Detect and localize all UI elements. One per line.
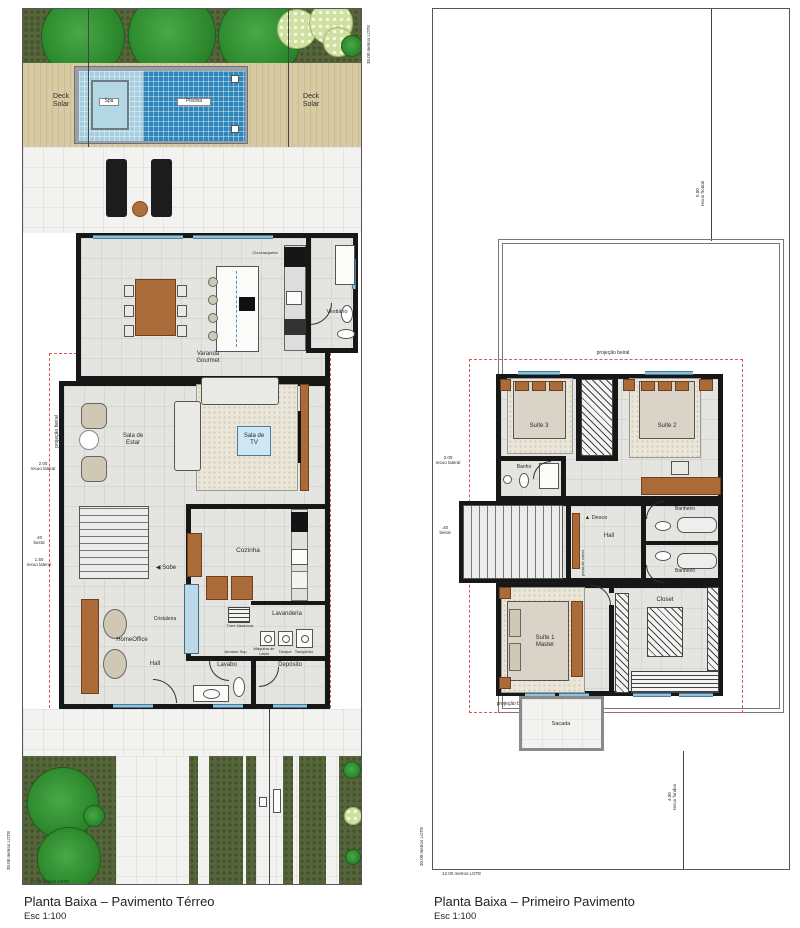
side-table xyxy=(132,201,148,217)
bathtub xyxy=(677,517,717,533)
window xyxy=(93,235,183,239)
desce-label: ▲ Desce xyxy=(579,515,613,521)
gate-marker xyxy=(259,797,267,807)
lavanderia-label: Lavanderia xyxy=(261,611,313,618)
sun-lounger xyxy=(151,159,172,217)
dim-note: .40 beiral xyxy=(27,535,51,545)
island-cabinet xyxy=(231,576,253,600)
grass-strip xyxy=(299,756,326,885)
dim-note: 2.00 recuo lateral xyxy=(29,461,57,471)
first-floor-title: Planta Baixa – Primeiro Pavimento xyxy=(434,894,635,909)
grass-strip xyxy=(189,756,198,885)
lot-width-label: 12.00 metros LOTE xyxy=(442,871,506,876)
bathtub-sink xyxy=(337,329,355,339)
coffee-cabinet xyxy=(187,533,202,577)
bathtub xyxy=(677,553,717,569)
toilet xyxy=(233,677,245,697)
window xyxy=(273,704,307,708)
deck-solar-right-label: Deck Solar xyxy=(285,93,337,109)
pool: Piscina Spa xyxy=(74,66,248,144)
back-patio xyxy=(23,709,362,756)
shower xyxy=(335,245,355,285)
wall xyxy=(613,374,618,461)
cooktop xyxy=(239,297,255,311)
hall-label: Hall xyxy=(593,533,625,540)
sink xyxy=(503,475,512,484)
tree-icon xyxy=(344,807,362,825)
sink xyxy=(291,549,308,565)
grass-strip xyxy=(283,756,293,885)
first-floor-plan: 5.00 recuo frontal projeção beiral proje… xyxy=(432,8,790,870)
main-pool xyxy=(143,71,245,141)
grass-strip xyxy=(246,756,256,885)
staircase xyxy=(463,505,563,579)
sacada-label: Sacada xyxy=(539,721,583,727)
pillow xyxy=(532,381,546,391)
tanque-basin xyxy=(282,635,290,643)
window xyxy=(193,235,273,239)
tanque xyxy=(278,631,293,646)
wall xyxy=(186,504,330,509)
window xyxy=(113,704,153,708)
sun-lounger xyxy=(106,159,127,217)
closet-island-hatch xyxy=(647,607,683,657)
wall xyxy=(566,501,571,583)
pillow xyxy=(658,381,672,391)
lot-depth-label: 30.00 metros LOTE xyxy=(419,814,428,878)
island-cabinet xyxy=(206,576,228,600)
lot-depth-label: 30.00 metros LOTE xyxy=(6,818,15,882)
pillow xyxy=(509,609,521,637)
cristaleira-cabinet xyxy=(184,584,199,654)
wardrobe-hatch xyxy=(631,671,719,693)
window xyxy=(645,371,693,375)
window xyxy=(213,704,243,708)
vestiario-label: Vestiário xyxy=(315,309,359,315)
chair xyxy=(124,285,134,297)
window xyxy=(679,693,713,697)
tv xyxy=(298,411,301,463)
sala-estar-label: Sala de Estar xyxy=(111,433,155,447)
pool-step xyxy=(231,125,239,133)
tanquinho-basin xyxy=(301,635,309,643)
hall-label: Hall xyxy=(139,661,171,668)
sofa xyxy=(201,377,279,405)
wardrobe-hatch xyxy=(615,593,629,693)
pool-patio xyxy=(23,147,362,233)
armchair xyxy=(81,456,107,482)
nightstand xyxy=(499,677,511,689)
sobe-label: ◀ Sobe xyxy=(149,565,183,572)
ground-floor-title: Planta Baixa – Pavimento Térreo xyxy=(24,894,215,909)
tree-icon xyxy=(345,849,361,865)
chair xyxy=(177,325,187,337)
desk xyxy=(81,599,99,694)
setback-line xyxy=(683,751,684,869)
grass-strip xyxy=(209,756,243,885)
eave-projection-label: projeção beiral xyxy=(581,351,645,357)
lot-width-label: 12.00 metros LOTE xyxy=(30,879,94,884)
tanquinho-label: Tanquinho xyxy=(291,650,317,655)
bench xyxy=(571,601,583,677)
stool xyxy=(208,331,218,341)
handrail xyxy=(572,513,580,569)
toilet xyxy=(519,473,529,488)
nightstand xyxy=(699,379,713,391)
sink xyxy=(286,291,302,305)
sala-tv-label: Sala de TV xyxy=(237,433,271,447)
gate-marker xyxy=(273,789,281,813)
cooktop xyxy=(291,512,308,532)
suite3-label: Suíte 3 xyxy=(517,423,561,430)
lot-depth-label: 30.00 metros LOTE xyxy=(366,12,375,76)
cozinha-label: Cozinha xyxy=(226,547,270,554)
wall xyxy=(576,456,618,461)
wall xyxy=(561,456,566,501)
tanquinho xyxy=(296,629,313,648)
grill xyxy=(284,247,306,267)
nightstand xyxy=(499,587,511,599)
stool xyxy=(208,313,218,323)
desce-text: Desce xyxy=(592,515,608,521)
armchair xyxy=(81,403,107,429)
cristaleira-label: Cristaleira xyxy=(145,617,185,623)
ground-floor-plan: Deck Solar Deck Solar Piscina Spa projeç… xyxy=(22,8,362,885)
terrain-line xyxy=(269,709,270,885)
desk xyxy=(641,477,721,495)
churrasqueira-label: Churrasqueira xyxy=(247,251,283,256)
window xyxy=(633,693,671,697)
oven xyxy=(284,319,306,335)
tree-icon xyxy=(37,827,101,885)
office-chair xyxy=(103,649,127,679)
chair xyxy=(124,305,134,317)
wardrobe-hatch xyxy=(707,587,719,671)
first-floor-scale: Esc 1:100 xyxy=(434,911,476,922)
shelves xyxy=(228,607,250,623)
washer-drum xyxy=(264,635,272,643)
varanda-label: Varanda Gourmet xyxy=(173,351,243,365)
banheiro-label: Banheiro xyxy=(663,569,707,575)
island-divider xyxy=(236,271,237,347)
dining-table xyxy=(135,279,176,336)
wall xyxy=(641,541,723,545)
banheiro-label: Banheiro xyxy=(663,507,707,513)
wall xyxy=(251,656,256,709)
window xyxy=(518,371,560,375)
sink-basin xyxy=(203,689,220,699)
suite2-label: Suíte 2 xyxy=(645,423,689,430)
stool xyxy=(208,277,218,287)
ground-floor-scale: Esc 1:100 xyxy=(24,911,66,922)
armario-label: Armário Sup. xyxy=(221,650,251,655)
wall xyxy=(251,601,330,605)
washing-machine xyxy=(260,631,275,646)
chair xyxy=(177,285,187,297)
pillow xyxy=(641,381,655,391)
tree-icon xyxy=(341,35,362,57)
nightstand xyxy=(623,379,635,391)
wardrobe-hatch xyxy=(581,379,613,456)
sink xyxy=(655,551,671,561)
staircase xyxy=(79,506,149,579)
spa-label: Spa xyxy=(99,98,119,106)
stool xyxy=(208,295,218,305)
wall xyxy=(499,456,561,461)
dim-note: 1.50 recuo lateral xyxy=(25,557,53,567)
wall xyxy=(186,656,330,661)
suite1-label: Suíte 1 Master xyxy=(521,635,569,649)
dim-note: .40 beiral xyxy=(433,525,457,535)
sink xyxy=(655,521,671,531)
chair xyxy=(177,305,187,317)
desk-chair xyxy=(671,461,689,475)
pillow xyxy=(549,381,563,391)
home-office-label: HomeOffice xyxy=(105,637,159,644)
office-chair xyxy=(103,609,127,639)
wall xyxy=(609,583,614,593)
drawing-canvas: Deck Solar Deck Solar Piscina Spa projeç… xyxy=(0,0,800,928)
pool-label: Piscina xyxy=(177,98,211,106)
setback-note: 4.00 recuo fundos xyxy=(667,771,683,823)
tree-icon xyxy=(343,761,361,779)
dim-note: 2.00 recuo lateral xyxy=(433,455,463,465)
torre-label: Torre Vassoura xyxy=(223,624,257,629)
vanity xyxy=(193,685,229,702)
round-table xyxy=(79,430,99,450)
wall xyxy=(609,605,614,696)
tv-panel xyxy=(300,384,309,491)
closet-label: Closet xyxy=(641,597,689,604)
loveseat xyxy=(174,401,201,471)
chair xyxy=(124,325,134,337)
porta-correr-label: porta de correr xyxy=(581,545,589,581)
setback-note: 5.00 recuo frontal xyxy=(695,167,711,219)
pillow xyxy=(515,381,529,391)
sobe-text: Sobe xyxy=(162,565,176,571)
pillow xyxy=(675,381,689,391)
pillow xyxy=(509,643,521,671)
tree-icon xyxy=(83,805,105,827)
fridge xyxy=(291,571,308,589)
pool-step xyxy=(231,75,239,83)
setback-line xyxy=(711,9,712,241)
nightstand xyxy=(500,379,511,391)
